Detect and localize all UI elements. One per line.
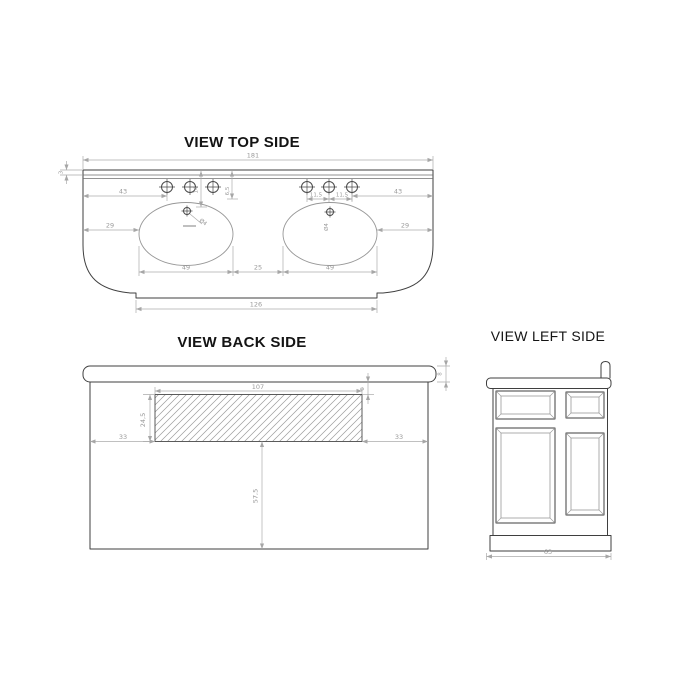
dim-lower-height: 57,5: [252, 442, 263, 550]
dim-opening-right-gap: 33: [362, 433, 428, 442]
view-back-side: VIEW BACK SIDE 107 24,5 6 8: [83, 334, 450, 549]
panel-inner: [501, 396, 550, 414]
panel-bevels: [566, 433, 604, 515]
panel-outer: [496, 428, 555, 523]
side-panel-top-front: [496, 391, 555, 419]
countertop-side-profile: [487, 378, 612, 389]
dimension-text: 6: [360, 387, 366, 391]
side-panel-bottom-back: [566, 433, 604, 515]
extension-lines: [139, 246, 233, 276]
backsplash-profile: [601, 362, 610, 379]
side-panel-top-back: [566, 392, 604, 418]
backsplash-edge-lines: [83, 175, 433, 179]
dimension-text: 181: [247, 152, 259, 160]
dim-left-to-basin: 29: [83, 222, 139, 231]
dim-faucet-spacing-a: 11,5: [307, 193, 329, 203]
dimension-text: 11,5: [310, 193, 323, 199]
dimension-text: 29: [401, 222, 409, 230]
technical-drawing: VIEW TOP SIDE: [0, 0, 700, 700]
dimension-text: 49: [326, 264, 334, 272]
dim-overall-width: 181: [83, 152, 433, 170]
dimension-text: 43: [119, 188, 127, 196]
dim-opening-width: 107: [155, 383, 362, 394]
dim-opening-left-gap: 33: [90, 433, 155, 442]
panel-outer: [566, 392, 604, 418]
countertop-outline: [83, 170, 433, 298]
dim-depth: 63: [487, 548, 612, 560]
faucet-hole-icon: [159, 179, 175, 195]
dimension-text: 6,5: [225, 186, 231, 195]
dim-front-width: 126: [136, 300, 377, 313]
dim-faucets-to-right: 43: [352, 188, 433, 202]
dimension-text: 49: [182, 264, 190, 272]
drawing-sheet: VIEW TOP SIDE: [0, 0, 700, 700]
side-panel-bottom-front: [496, 428, 555, 523]
dim-opening-height: 24,5: [139, 395, 154, 442]
dimension-text: 126: [250, 301, 262, 309]
dimension-text: 29: [106, 222, 114, 230]
dimension-text: 63: [544, 548, 552, 556]
drain-hole-right: Ø4: [323, 207, 336, 231]
drain-diameter-text: Ø4: [198, 217, 209, 228]
dim-basin-width-right: 49: [283, 246, 377, 276]
drain-hole-left: Ø4: [182, 206, 209, 228]
dimension-text: 11,5: [336, 193, 349, 199]
dim-top-thickness: 8: [437, 357, 450, 391]
dim-faucet-spacing-b: 11,5: [329, 193, 352, 203]
dim-basin-to-right: 29: [377, 222, 433, 231]
faucet-hole-icon: [205, 179, 221, 195]
panel-bevels: [496, 391, 555, 419]
panel-inner: [571, 397, 599, 413]
extension-lines: [283, 246, 377, 276]
dimension-text: 3: [59, 170, 65, 174]
dimension-text: 24,5: [139, 413, 147, 427]
back-opening-hatched: [155, 395, 362, 442]
dimension-text: 33: [119, 433, 127, 441]
dim-left-to-faucets: 43: [83, 188, 167, 202]
view-left-side: VIEW LEFT SIDE 63: [487, 328, 612, 560]
dimension-text: 25: [254, 264, 262, 272]
drain-diameter-text: Ø4: [323, 223, 330, 231]
panel-outer: [566, 433, 604, 515]
panel-bevels: [496, 428, 555, 523]
dim-between-basins: 25: [233, 264, 283, 273]
panel-outer: [496, 391, 555, 419]
dimension-text: 43: [394, 188, 402, 196]
back-view-title: VIEW BACK SIDE: [177, 334, 306, 351]
dim-drain-from-back: 14: [194, 171, 208, 207]
dimension-text: 14: [194, 186, 200, 193]
dim-backsplash-depth: 3: [59, 161, 83, 184]
countertop-profile: [83, 366, 436, 382]
view-top-side: VIEW TOP SIDE: [59, 134, 434, 313]
top-view-title: VIEW TOP SIDE: [184, 134, 300, 151]
dimension-text: 107: [252, 383, 264, 391]
panel-inner: [501, 433, 550, 518]
panel-bevels: [566, 392, 604, 418]
dimension-text: 33: [395, 433, 403, 441]
dimension-text: 57,5: [252, 489, 260, 503]
dim-basin-width-left: 49: [139, 246, 233, 276]
faucet-hole-icon: [321, 179, 337, 195]
left-view-title: VIEW LEFT SIDE: [491, 328, 605, 344]
panel-inner: [571, 438, 599, 510]
dimension-text: 8: [438, 372, 444, 376]
